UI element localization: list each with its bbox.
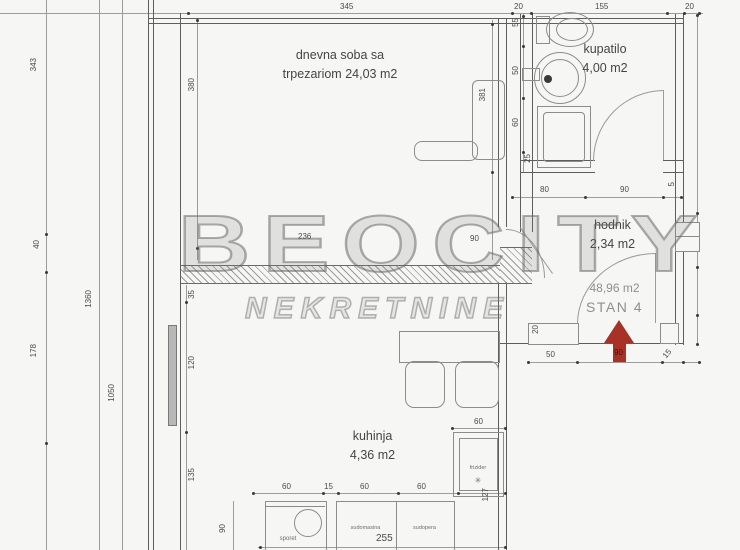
dim-line-stove-left	[233, 501, 234, 550]
dim-living-90: 90	[470, 235, 479, 243]
dim-entry-20: 20	[532, 325, 540, 334]
dim-kitchen-15: 15	[324, 483, 333, 491]
wall-top-outer	[148, 18, 683, 19]
wall-entry-bottom	[498, 343, 683, 344]
dim-tick	[457, 492, 460, 495]
stove-label: sporet	[268, 536, 308, 542]
right-wall-window-b	[675, 236, 700, 252]
wall-bath-left-b	[532, 14, 533, 232]
dim-tick	[337, 492, 340, 495]
dim-line-left-outer	[46, 0, 47, 550]
dim-tick	[530, 12, 533, 15]
dim-top-20-right: 20	[685, 3, 694, 11]
dim-left-1050: 1050	[108, 384, 116, 402]
stove-panel-line	[265, 506, 325, 507]
dim-line-entry	[528, 362, 701, 363]
dim-tick	[683, 12, 686, 15]
dim-tick	[504, 546, 507, 549]
dim-left-1360: 1360	[85, 290, 93, 308]
kitchen-label: kuhinja 4,36 m2	[315, 427, 430, 465]
dim-tick	[187, 12, 190, 15]
dim-line-top	[0, 13, 703, 14]
dim-tick	[259, 546, 262, 549]
entry-jamb-right	[660, 323, 679, 344]
dim-living-35: 35	[188, 290, 196, 299]
dim-bath-50: 50	[512, 66, 520, 75]
dim-kitchen-60-1: 60	[282, 483, 291, 491]
entrance-arrow-icon	[604, 320, 634, 343]
dim-tick	[696, 266, 699, 269]
apartment-unit: STAN 4	[562, 299, 667, 315]
dim-hall-90: 90	[620, 186, 629, 194]
dim-left-40: 40	[33, 240, 41, 249]
wall-top-inner	[148, 23, 683, 24]
sink-drain	[544, 75, 552, 83]
dim-living-380: 380	[188, 78, 196, 91]
floor-plan: 90 frizider ✳ sporet sudomasina sudopera	[0, 0, 740, 550]
toilet-tank	[536, 16, 550, 44]
bath-door-arc	[593, 90, 664, 161]
dim-line-left-mid	[99, 0, 100, 550]
dim-kitchen-135: 135	[188, 468, 196, 481]
dim-tick	[696, 343, 699, 346]
sink-faucet	[522, 68, 540, 81]
chair-icon-1	[405, 361, 445, 408]
dim-tick	[584, 196, 587, 199]
toilet-bowl-inner	[556, 18, 588, 41]
dim-tick	[45, 271, 48, 274]
dim-tick	[680, 196, 683, 199]
apartment-label: 48,96 m2 STAN 4	[562, 281, 667, 315]
wall-bath-left-a	[520, 14, 521, 232]
dim-top-20-left: 20	[514, 3, 523, 11]
wall-kitchen-right-a	[498, 282, 499, 550]
wall-left-outer	[148, 0, 149, 550]
dim-line-below-bath	[512, 197, 683, 198]
dim-entry-15: 15	[662, 348, 674, 360]
dim-tick	[698, 361, 701, 364]
wall-left-outer2	[153, 0, 154, 550]
dim-tick	[491, 23, 494, 26]
dim-kitchen-60-3: 60	[417, 483, 426, 491]
wall-right-outer-a	[675, 14, 676, 345]
dim-bath-25: 25	[524, 154, 532, 163]
bathroom-area: 4,00 m2	[560, 59, 650, 78]
dim-tick	[45, 442, 48, 445]
dishwasher-label: sudomasina	[338, 526, 393, 532]
dim-living-381: 381	[479, 88, 487, 101]
dim-bath-60: 60	[512, 118, 520, 127]
dim-line-living-left	[197, 18, 198, 260]
hatched-wall-horizontal	[181, 265, 500, 284]
stove-burner	[294, 509, 322, 537]
bathroom-name: kupatilo	[560, 40, 650, 59]
dim-tick	[576, 361, 579, 364]
kitchen-sink-label: sudopera	[398, 526, 451, 532]
dim-line-bath-side	[523, 14, 524, 172]
dim-tick	[196, 19, 199, 22]
bathroom-label: kupatilo 4,00 m2	[560, 40, 650, 78]
dim-kitchen-90: 90	[219, 524, 227, 533]
sofa-armrest	[414, 141, 478, 161]
window-left-wall	[168, 325, 177, 426]
fridge-label: frizider	[456, 466, 500, 472]
wall-bath-bottom-b	[520, 172, 595, 173]
living-room-label: dnevna soba sa trpezariom 24,03 m2	[235, 46, 445, 84]
dim-kitchen-120: 120	[188, 356, 196, 369]
wall-bath-bottom-c	[663, 160, 683, 161]
dim-left-343: 343	[30, 58, 38, 71]
dim-tick	[666, 12, 669, 15]
apartment-total-area: 48,96 m2	[562, 281, 667, 295]
wall-bath-bottom-d	[663, 172, 683, 173]
dim-tick	[696, 14, 699, 17]
dim-tick	[511, 196, 514, 199]
dim-bath-55: 55	[512, 18, 520, 27]
dim-tick	[491, 171, 494, 174]
dim-tick	[397, 492, 400, 495]
wall-right-outer-b	[683, 14, 684, 345]
hatched-wall-pier	[500, 247, 532, 284]
dim-tick	[522, 97, 525, 100]
snowflake-icon: ✳	[468, 477, 488, 485]
dim-tick	[522, 45, 525, 48]
chair-icon-2	[455, 361, 499, 408]
dim-tick	[696, 314, 699, 317]
dining-table-icon	[399, 331, 500, 363]
watermark-nekretnine: NEKRETNINE	[245, 292, 510, 326]
living-room-name: dnevna soba sa	[235, 46, 445, 65]
dim-tick	[252, 492, 255, 495]
wall-living-right-b	[506, 18, 507, 227]
living-room-area: trpezariom 24,03 m2	[235, 65, 445, 84]
dim-tick	[504, 492, 507, 495]
dim-tick	[522, 15, 525, 18]
dim-line-right	[697, 13, 698, 346]
dim-top-345: 345	[340, 3, 353, 11]
washing-machine-inner	[543, 112, 585, 162]
dim-kitchen-127: 127	[482, 488, 490, 501]
dim-tick	[196, 247, 199, 250]
dim-tick	[696, 212, 699, 215]
dim-tick	[682, 361, 685, 364]
dim-kitchen-255: 255	[376, 534, 393, 544]
kitchen-area: 4,36 m2	[315, 446, 430, 465]
dim-left-178: 178	[30, 344, 38, 357]
dim-tick	[451, 427, 454, 430]
dim-line-left-inner	[122, 0, 123, 550]
dim-tick	[511, 12, 514, 15]
dim-entry-50: 50	[546, 351, 555, 359]
dim-tick	[661, 361, 664, 364]
wall-kitchen-right-b	[506, 282, 507, 550]
dim-fridge-60: 60	[474, 418, 483, 426]
dim-tick	[504, 427, 507, 430]
dim-tick	[45, 233, 48, 236]
dim-line-kitchen-left	[186, 285, 187, 550]
dim-tick	[185, 431, 188, 434]
dim-tick	[185, 301, 188, 304]
dim-hall-5: 5	[668, 182, 676, 186]
hall-name: hodnik	[565, 216, 660, 235]
hall-area: 2,34 m2	[565, 235, 660, 254]
dim-tick	[322, 492, 325, 495]
dim-tick	[527, 361, 530, 364]
dim-entry-90: 90	[614, 349, 623, 357]
dim-tick	[662, 196, 665, 199]
dim-top-155: 155	[595, 3, 608, 11]
dim-living-236: 236	[298, 233, 311, 241]
kitchen-name: kuhinja	[315, 427, 430, 446]
dim-hall-80: 80	[540, 186, 549, 194]
dim-kitchen-60-2: 60	[360, 483, 369, 491]
hall-label: hodnik 2,34 m2	[565, 216, 660, 254]
